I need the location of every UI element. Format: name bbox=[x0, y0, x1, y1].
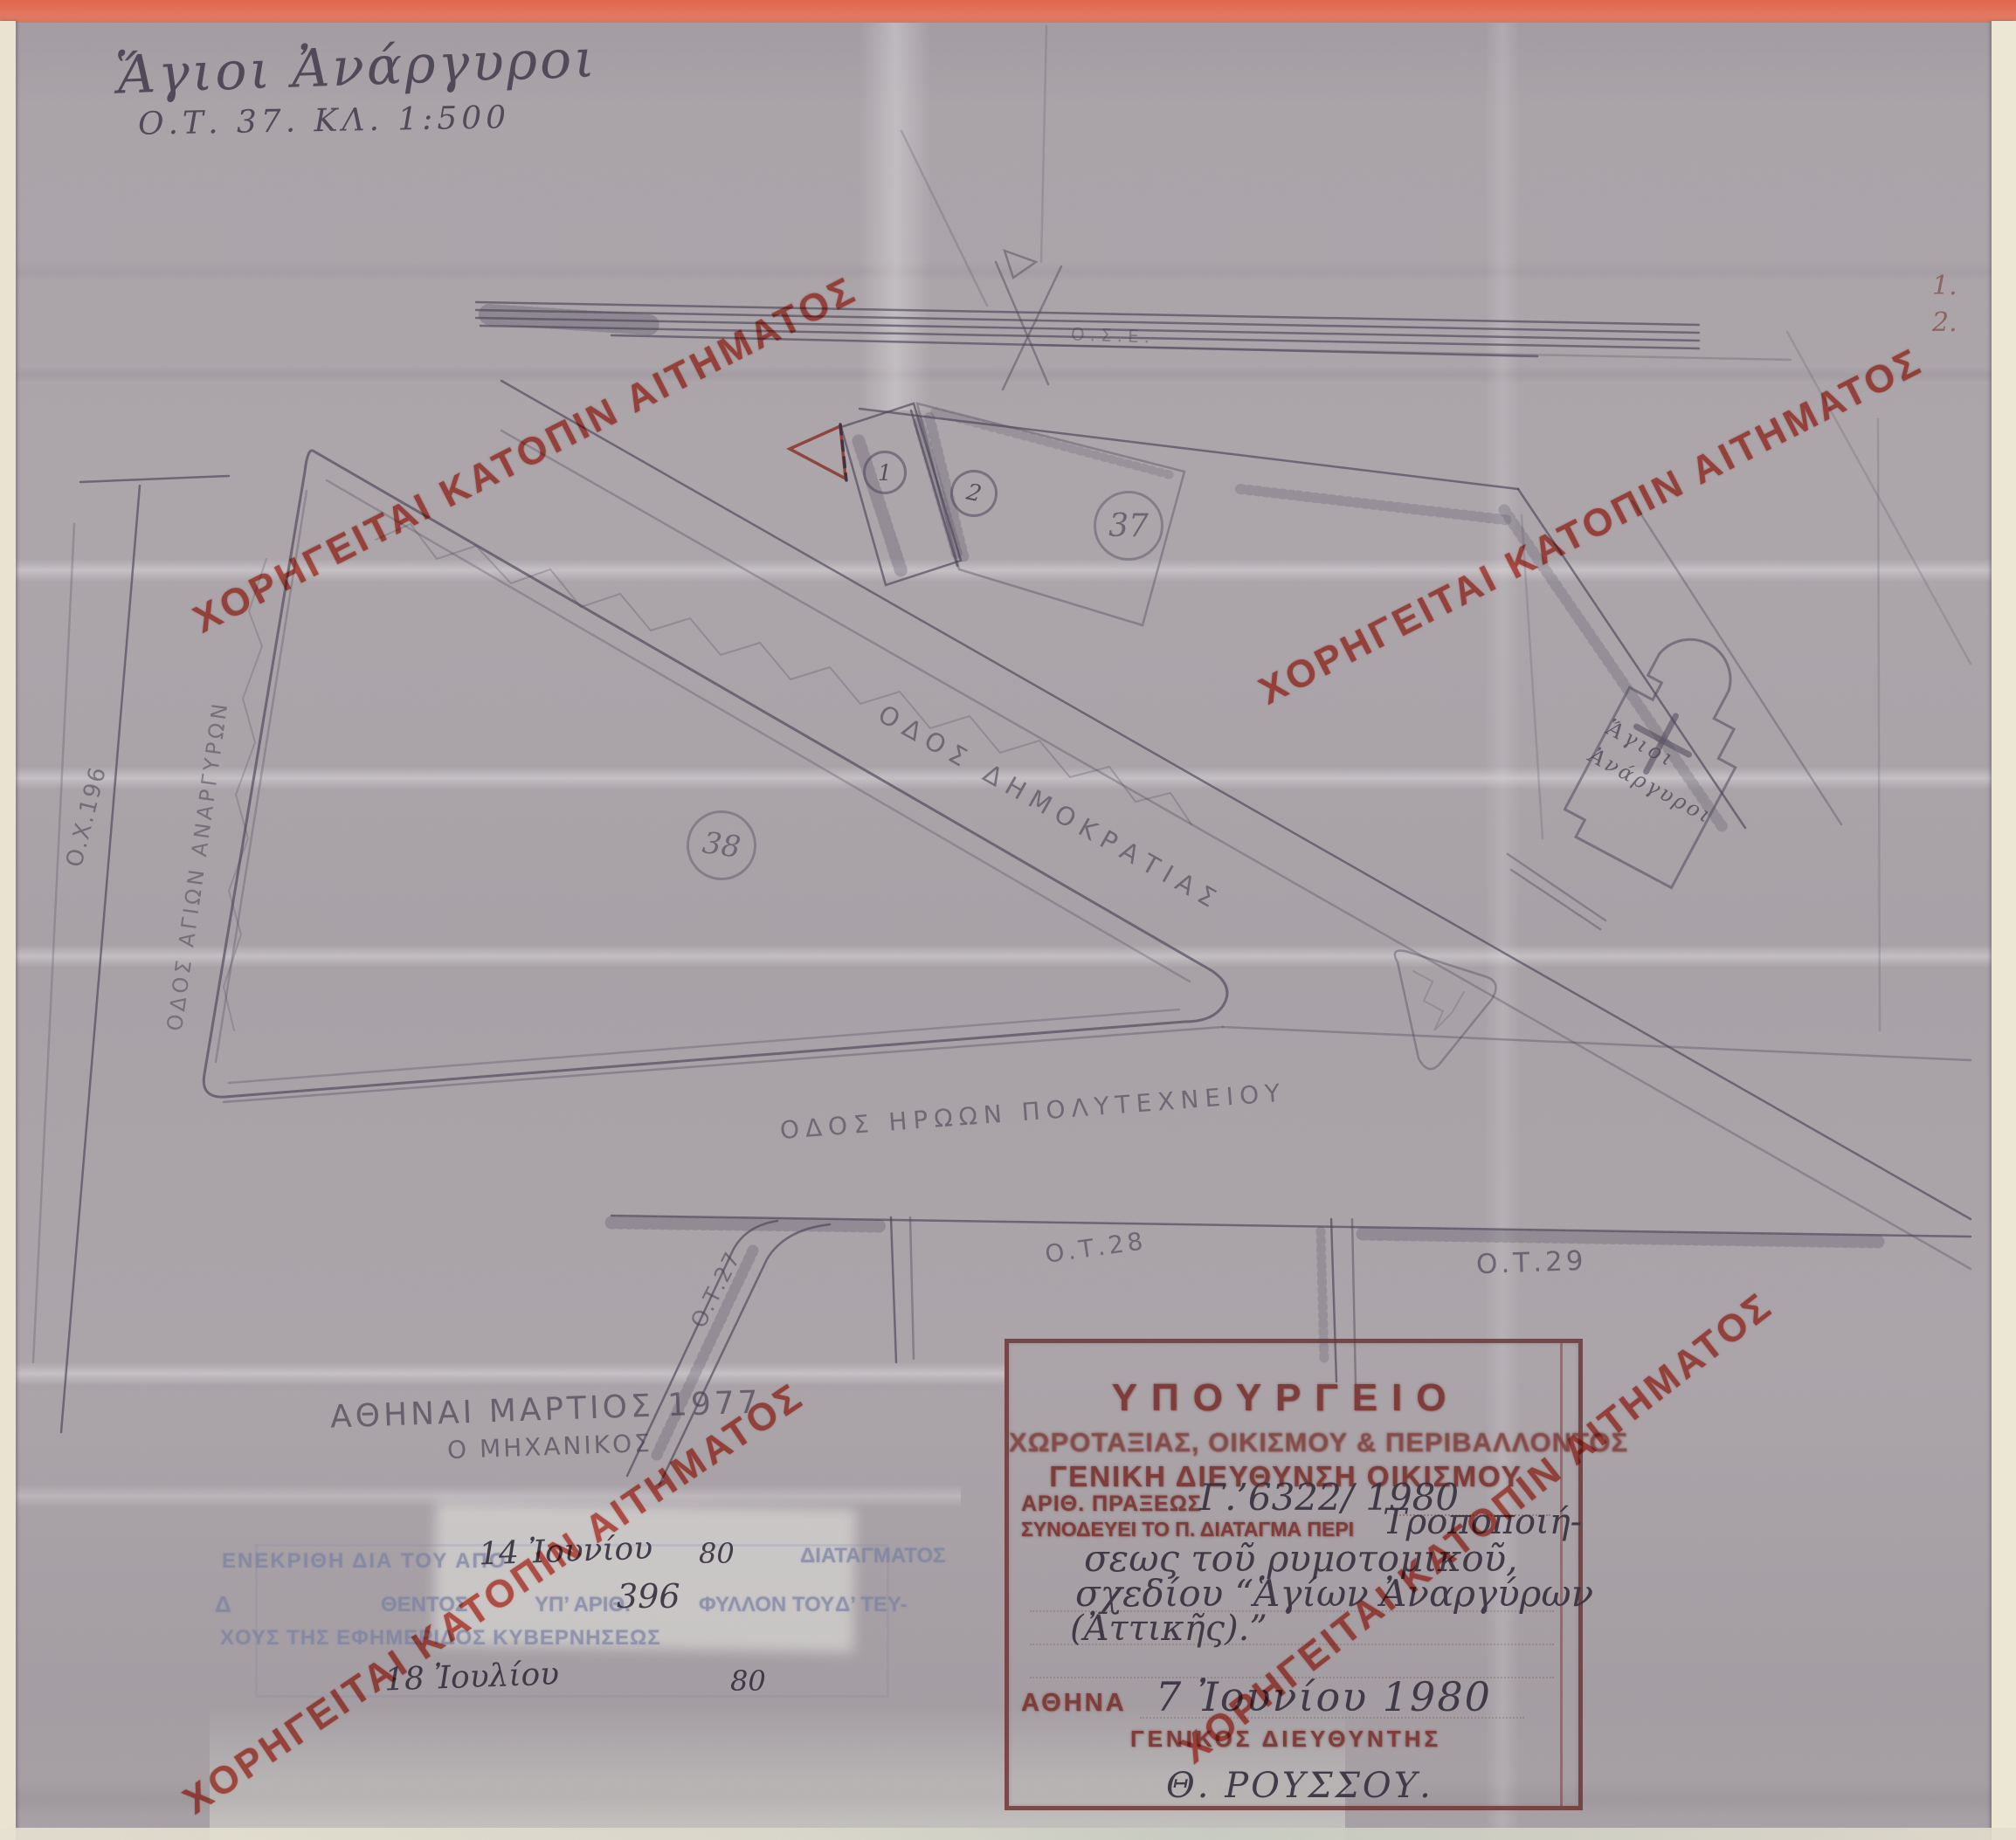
approval-hand-year1: 80 bbox=[699, 1537, 735, 1570]
railway-lines bbox=[476, 302, 1791, 360]
block-27-street bbox=[627, 1221, 830, 1485]
street-dimokratias-lines bbox=[501, 381, 1971, 1269]
plot-number-2: 2 bbox=[946, 465, 1002, 521]
street-label-dimokratias: ΟΔΟΣ ΔΗΜΟΚΡΑΤΙΑΣ bbox=[873, 699, 1228, 917]
block-number-37: 37 bbox=[1094, 491, 1163, 561]
fold-crease bbox=[0, 559, 2016, 582]
margin-number-2: 2. bbox=[1932, 307, 1957, 338]
traffic-island bbox=[1395, 951, 1496, 1070]
watermark-bottom-left: ΧΟΡΗΓΕΙΤΑΙ ΚΑΤΟΠΙΝ ΑΙΤΗΜΑΤΟΣ bbox=[176, 1375, 812, 1823]
approval-faint-line2e: Δ’ ΤΕΥ- bbox=[835, 1593, 908, 1617]
stamp-dotted-rule bbox=[1140, 1717, 1524, 1719]
crossing-symbol bbox=[901, 26, 1061, 389]
block-number-38: 38 bbox=[682, 806, 761, 885]
approval-hand-date2: 18 Ἰουλίου bbox=[383, 1657, 559, 1699]
fold-crease bbox=[0, 945, 2016, 968]
block-37-boundaries bbox=[860, 332, 1971, 1030]
red-parcel bbox=[790, 426, 846, 479]
street-iroon-lines bbox=[224, 1027, 1971, 1242]
block-label-ox196: Ο.Χ.196 bbox=[61, 763, 112, 870]
plot-2-outline bbox=[917, 403, 1184, 625]
engineer-title-note: Ο ΜΗΧΑΝΙΚΟΣ bbox=[446, 1429, 652, 1464]
scan-edge-left bbox=[0, 21, 16, 1840]
margin-number-1: 1. bbox=[1932, 271, 1957, 301]
approval-faint-line1b: ΔΙΑΤΑΓΜΑΤΟΣ bbox=[800, 1544, 946, 1568]
block-label-ot28: Ο.Τ.28 bbox=[1043, 1226, 1148, 1269]
approval-faint-line2d: ΦΥΛΛΟΝ ΤΟΥ bbox=[699, 1593, 834, 1617]
approval-hand-date1: 14 Ἰουνίου bbox=[478, 1531, 652, 1573]
fold-crease bbox=[0, 767, 2016, 789]
street-agion-lines bbox=[33, 476, 229, 1432]
fold-crease bbox=[0, 1362, 1005, 1385]
approval-faint-line2c: ΥΠ’ ΑΡΙΘ. bbox=[535, 1593, 631, 1617]
block-38-outline bbox=[204, 451, 1227, 1097]
street-label-agion: ΟΔΟΣ ΑΓΙΩΝ ΑΝΑΡΓΥΡΩΝ bbox=[162, 753, 225, 1033]
scan-streak bbox=[0, 367, 2016, 382]
approval-faint-line2a: Δ bbox=[215, 1591, 231, 1618]
scan-edge-top bbox=[0, 0, 2016, 23]
stamp-signer-title: ΓΕΝΙΚΟΣ ΔΙΕΥΘΥΝΤΗΣ bbox=[1009, 1726, 1563, 1753]
ministry-stamp-box: ΥΠΟΥΡΓΕΙΟ ΧΩΡΟΤΑΞΙΑΣ, ΟΙΚΙΣΜΟΥ & ΠΕΡΙΒΑΛ… bbox=[1005, 1339, 1583, 1810]
approval-faint-line2b: ΘΕΝΤΟΣ bbox=[381, 1593, 467, 1617]
plan-scale-note: Ο.Τ. 37. ΚΛ. 1:500 bbox=[138, 100, 511, 141]
stamp-act-label: ΑΡΙΘ. ΠΡΑΞΕΩΣ bbox=[1021, 1492, 1202, 1517]
scanned-plan-page: { "note": { "line1": "Ἅγιοι Ἀνάργυροι", … bbox=[0, 0, 2016, 1840]
church-block-walls bbox=[1508, 515, 1605, 929]
approval-hand-year2: 80 bbox=[730, 1664, 766, 1698]
block-label-ot29: Ο.Τ.29 bbox=[1475, 1245, 1587, 1280]
approval-faint-line3: ΧΟΥΣ ΤΗΣ ΕΦΗΜΕΡΙΔΟΣ ΚΥΒΕΡΝΗΣΕΩΣ bbox=[220, 1626, 661, 1650]
approval-hand-number: 396 bbox=[617, 1577, 680, 1616]
stamp-dotted-rule bbox=[1030, 1644, 1554, 1645]
faded-stamp-outline bbox=[255, 1544, 889, 1698]
traffic-island-inner bbox=[1413, 971, 1464, 1030]
stamp-dotted-rule bbox=[1030, 1610, 1554, 1612]
scan-streak-vertical bbox=[860, 0, 930, 410]
church-outline bbox=[1556, 621, 1781, 888]
fold-crease bbox=[0, 1485, 961, 1507]
railway-label: Ο.Σ.Ε. bbox=[1071, 323, 1156, 347]
approval-faint-line1: ΕΝΕΚΡΙΘΗ ΔΙΑ ΤΟΥ ΑΠΟ bbox=[222, 1549, 507, 1574]
street-label-iroon: ΟΔΟΣ ΗΡΩΩΝ ΠΟΛΥΤΕΧΝΕΙΟΥ bbox=[779, 1079, 1288, 1145]
engineer-date-note: ΑΘΗΝΑΙ ΜΑΡΤΙΟΣ 1977 bbox=[329, 1384, 762, 1435]
stamp-department-line: ΧΩΡΟΤΑΞΙΑΣ, ΟΙΚΙΣΜΟΥ & ΠΕΡΙΒΑΛΛΟΝΤΟΣ bbox=[1009, 1427, 1563, 1458]
stamp-city-label: ΑΘΗΝΑ bbox=[1021, 1689, 1127, 1718]
plot-1-outline bbox=[841, 403, 961, 585]
red-parcel-dashed-edge bbox=[840, 424, 846, 480]
whiteout-patch bbox=[434, 1502, 856, 1652]
stamp-date-value: 7 Ἰουνίου 1980 bbox=[1156, 1673, 1492, 1720]
plot-number-1: 1 bbox=[863, 451, 907, 494]
plan-title-note: Ἅγιοι Ἀνάργυροι bbox=[114, 28, 598, 106]
scan-streak bbox=[0, 262, 2016, 281]
watermark-top-right: ΧΟΡΗΓΕΙΤΑΙ ΚΑΤΟΠΙΝ ΑΙΤΗΜΑΤΟΣ bbox=[1253, 340, 1930, 713]
block-label-ot27: Ο.Τ.27 bbox=[686, 1247, 746, 1333]
church-label-line2: Ἀνάργυροι bbox=[1585, 743, 1717, 829]
scan-edge-right bbox=[1992, 21, 2016, 1840]
stamp-ministry-line: ΥΠΟΥΡΓΕΙΟ bbox=[1009, 1376, 1563, 1420]
church-label-line1: Ἅγιοι bbox=[1602, 715, 1680, 772]
stamp-signature: Θ. ΡΟΥΣΣΟΥ. bbox=[1166, 1766, 1433, 1806]
scan-edge-bottom bbox=[0, 1828, 2016, 1840]
watermark-top-left: ΧΟΡΗΓΕΙΤΑΙ ΚΑΤΟΠΙΝ ΑΙΤΗΜΑΤΟΣ bbox=[187, 268, 865, 642]
